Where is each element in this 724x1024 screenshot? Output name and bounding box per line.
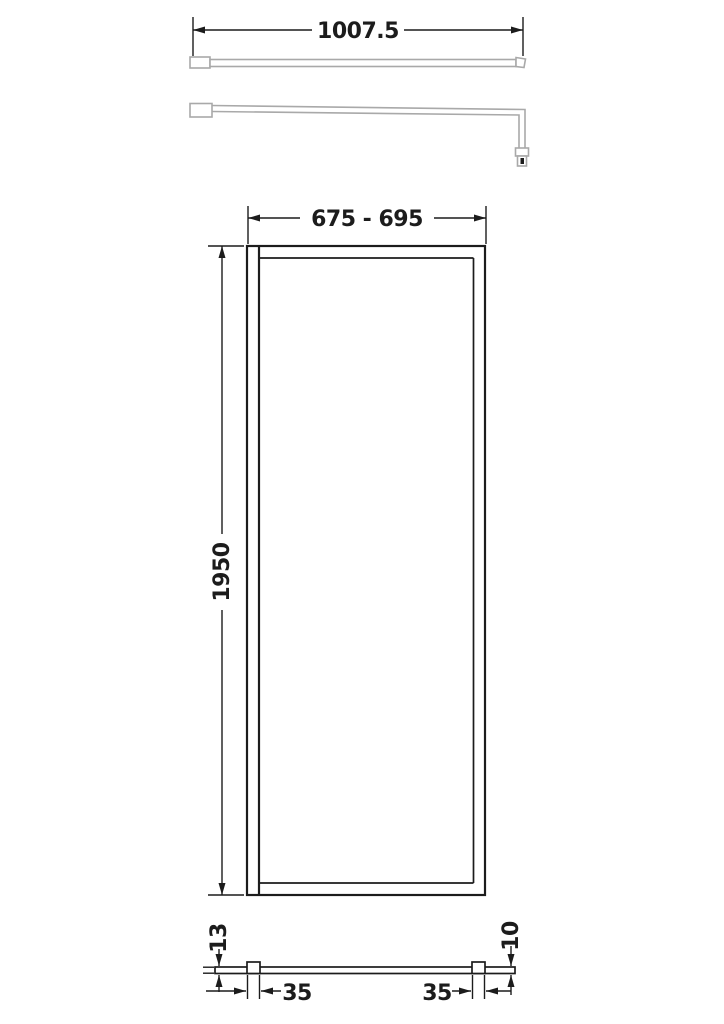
- dimension-panel-height: 1950: [207, 246, 244, 895]
- dimension-offset-left: 35: [206, 975, 312, 1006]
- dimension-glass-thickness: 10: [499, 921, 524, 995]
- support-bar-side-view: [190, 104, 529, 167]
- support-bar-front-view: [190, 57, 526, 68]
- glass-clamp-head: [516, 148, 529, 156]
- shower-screen-technical-drawing: 1007.5 675 - 695: [0, 0, 724, 1024]
- support-bar-length-label: 1007.5: [317, 19, 399, 44]
- wall-bracket: [190, 57, 210, 68]
- support-bar-inner-edge: [212, 112, 519, 149]
- panel-plan-view: [215, 962, 515, 974]
- wall-profile-depth-label: 13: [207, 923, 232, 953]
- wall-profile-section: [247, 962, 260, 974]
- glass-thickness-label: 10: [499, 921, 524, 951]
- panel-height-label: 1950: [210, 542, 235, 601]
- adjustment-width-label: 675 - 695: [311, 207, 423, 232]
- dimension-support-bar-length: 1007.5: [193, 16, 523, 56]
- glass-clamp: [516, 58, 526, 68]
- panel-outline: [247, 246, 485, 895]
- offset-left-label: 35: [282, 981, 312, 1006]
- offset-right-label: 35: [422, 981, 452, 1006]
- technical-drawing-page: 1007.5 675 - 695: [0, 0, 724, 1024]
- dimension-offset-right: 35: [422, 975, 511, 1006]
- dimension-adjustment-width: 675 - 695: [248, 204, 486, 244]
- frame-profile-section: [472, 962, 485, 974]
- glass-clamp-slot: [521, 158, 525, 164]
- support-bar: [210, 60, 516, 67]
- panel-front-view: [247, 246, 485, 895]
- dimension-wall-profile-depth: 13: [203, 923, 232, 992]
- wall-bracket: [190, 104, 212, 118]
